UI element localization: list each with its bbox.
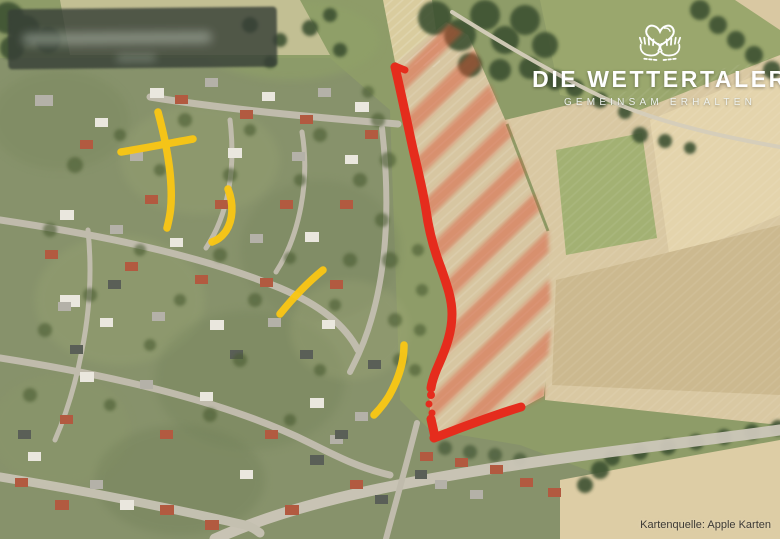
aerial-map-page: DIE WETTERTALER GEMEINSAM ERHALTEN Karte…	[0, 0, 780, 539]
redacted-text-line	[116, 54, 156, 62]
logo-subtitle: GEMEINSAM ERHALTEN	[564, 97, 756, 108]
redacted-text-banner	[8, 7, 278, 70]
hands-holding-heart-icon	[632, 8, 688, 64]
redacted-text-line	[22, 31, 212, 45]
logo-title: DIE WETTERTALER	[532, 66, 780, 93]
logo: DIE WETTERTALER GEMEINSAM ERHALTEN	[540, 8, 780, 108]
map-attribution: Kartenquelle: Apple Karten	[640, 519, 771, 531]
